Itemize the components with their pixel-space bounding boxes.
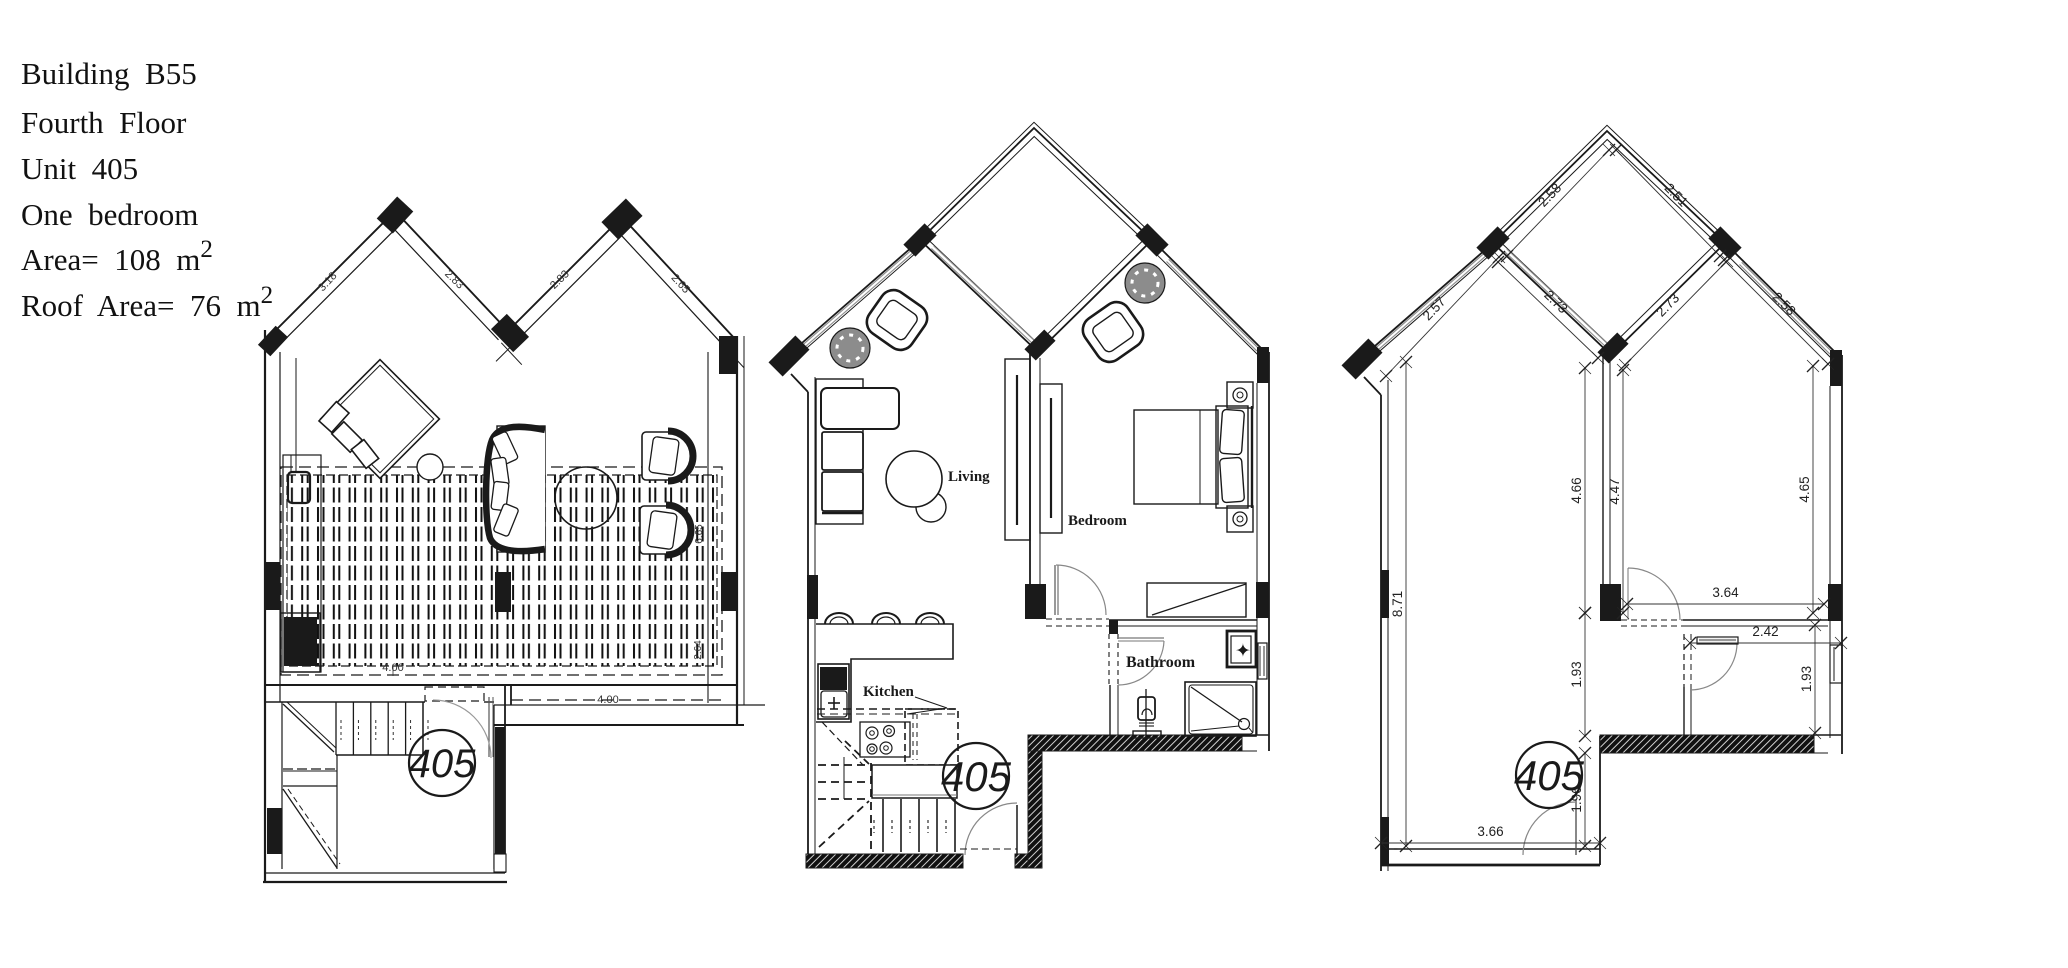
svg-text:One bedroom: One bedroom bbox=[21, 197, 198, 232]
svg-text:2.42: 2.42 bbox=[1752, 624, 1778, 639]
svg-text:4.66: 4.66 bbox=[1569, 477, 1584, 503]
svg-text:405: 405 bbox=[409, 742, 476, 786]
svg-text:4.47: 4.47 bbox=[1607, 478, 1622, 504]
svg-text:Kitchen: Kitchen bbox=[863, 684, 914, 700]
svg-text:Fourth Floor: Fourth Floor bbox=[21, 105, 187, 140]
svg-text:3.66: 3.66 bbox=[1477, 824, 1503, 839]
svg-text:✦: ✦ bbox=[1235, 641, 1251, 662]
svg-text:Roof Area= 76 m2: Roof Area= 76 m2 bbox=[21, 282, 273, 323]
svg-text:4.65: 4.65 bbox=[1797, 476, 1812, 502]
svg-text:405: 405 bbox=[1514, 752, 1585, 799]
svg-text:Bedroom: Bedroom bbox=[1068, 513, 1127, 529]
svg-text:6.65: 6.65 bbox=[694, 524, 705, 544]
svg-text:Area= 108 m2: Area= 108 m2 bbox=[21, 236, 213, 277]
svg-text:4.00: 4.00 bbox=[597, 694, 618, 706]
svg-text:2.64: 2.64 bbox=[693, 640, 704, 660]
svg-text:1.93: 1.93 bbox=[1569, 661, 1584, 687]
svg-text:405: 405 bbox=[941, 753, 1012, 800]
svg-text:Living: Living bbox=[948, 469, 990, 485]
svg-text:Building B55: Building B55 bbox=[21, 56, 197, 91]
svg-text:Unit 405: Unit 405 bbox=[21, 151, 138, 186]
svg-text:3.64: 3.64 bbox=[1712, 585, 1739, 600]
svg-text:8.71: 8.71 bbox=[1390, 591, 1405, 617]
svg-text:1.93: 1.93 bbox=[1799, 666, 1814, 692]
svg-text:Bathroom: Bathroom bbox=[1126, 654, 1196, 671]
